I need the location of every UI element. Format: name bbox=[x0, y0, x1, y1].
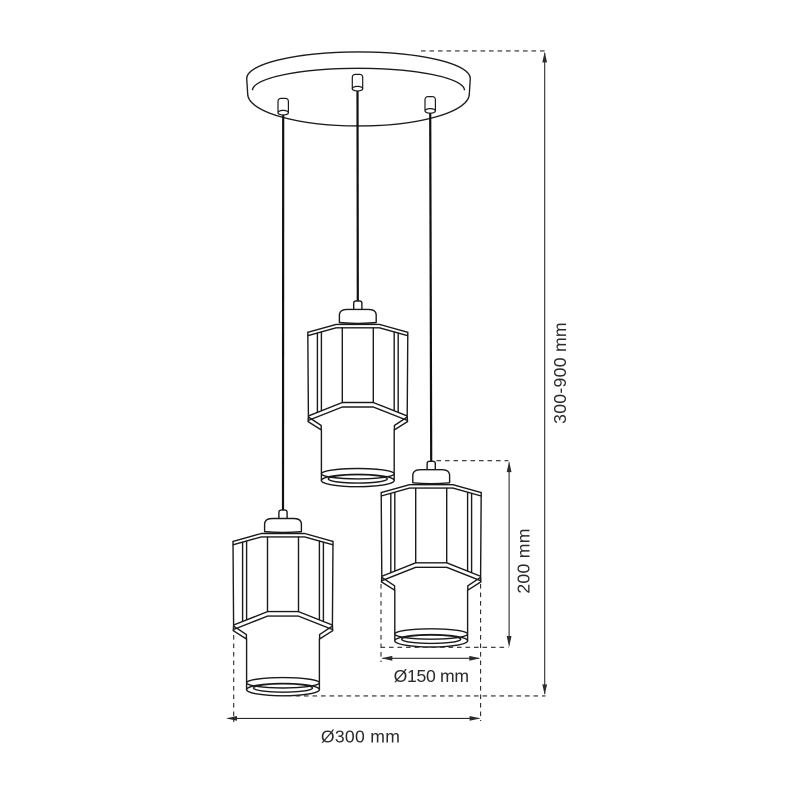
svg-text:300-900 mm: 300-900 mm bbox=[550, 322, 570, 424]
svg-text:Ø150 mm: Ø150 mm bbox=[394, 666, 469, 686]
svg-text:200 mm: 200 mm bbox=[514, 528, 534, 593]
svg-text:Ø300 mm: Ø300 mm bbox=[321, 727, 400, 747]
